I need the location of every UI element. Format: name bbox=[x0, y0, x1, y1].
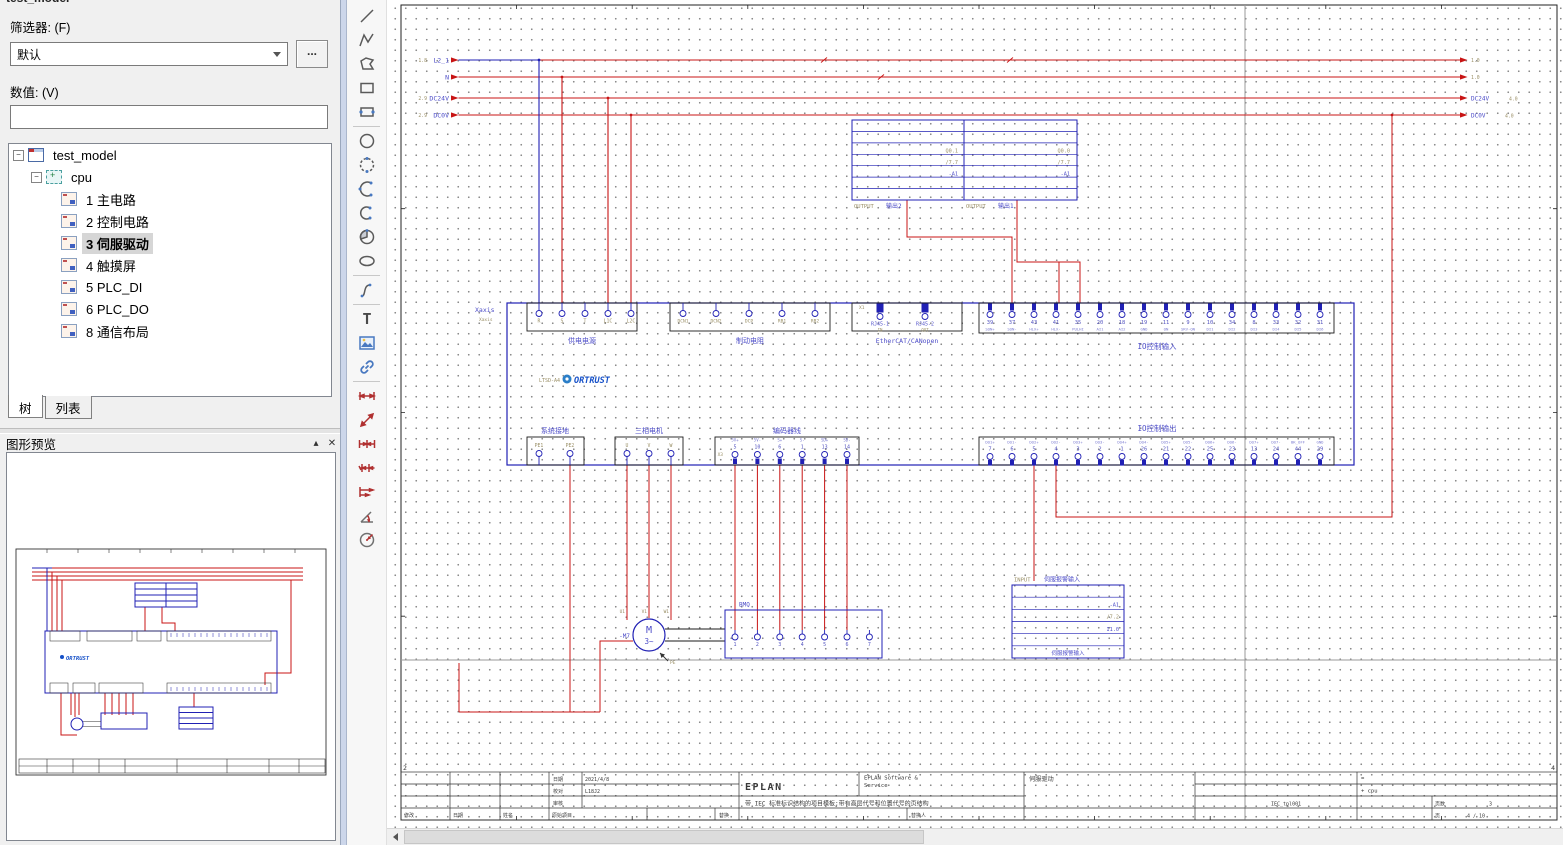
close-panel-icon[interactable]: ✕ bbox=[324, 438, 340, 449]
tool-circle-icon[interactable] bbox=[355, 130, 379, 152]
tb-structure: + cpu bbox=[1361, 789, 1378, 795]
ethercat-group-box bbox=[852, 303, 962, 331]
svg-text:DO6+: DO6+ bbox=[1205, 440, 1215, 445]
collapse-icon[interactable]: − bbox=[31, 172, 42, 183]
svg-text:SRV-ON: SRV-ON bbox=[1181, 327, 1196, 332]
svg-text:SON+: SON+ bbox=[985, 327, 995, 332]
svg-text:T: T bbox=[584, 319, 587, 325]
svg-text:11: 11 bbox=[1163, 320, 1170, 326]
tool-sector-icon[interactable] bbox=[355, 226, 379, 248]
svg-text:DO1+: DO1+ bbox=[985, 440, 995, 445]
svg-text:GND: GND bbox=[1140, 327, 1148, 332]
page-icon bbox=[61, 236, 77, 250]
svg-text:L1C: L1C bbox=[604, 319, 613, 325]
svg-text:S+: S+ bbox=[777, 438, 782, 443]
motor-symbol[interactable]: M 3~ -M7 U1 V1 W1 PE bbox=[619, 609, 725, 666]
toolbar-separator bbox=[353, 275, 380, 276]
group-label: IO控制输出 bbox=[1137, 423, 1176, 433]
tab-tree[interactable]: 树 bbox=[8, 395, 43, 418]
tb-label: 姓名 bbox=[503, 812, 513, 819]
terminal-strip-motor: UVW bbox=[624, 443, 674, 465]
svg-text:GND: GND bbox=[1316, 440, 1324, 445]
plc-name: 输出2 bbox=[886, 202, 902, 210]
tb-label: 替换 bbox=[719, 812, 729, 819]
tb-check: L18J2 bbox=[585, 789, 600, 795]
svg-text:IN: IN bbox=[878, 328, 883, 333]
svg-text:2: 2 bbox=[1098, 447, 1101, 453]
project-icon bbox=[28, 148, 44, 162]
plc-input-box[interactable]: INPUT 伺服报警输入 -A1 /7.2 I1.0 伺服报警输入 bbox=[1012, 576, 1124, 659]
tree-item-page[interactable]: 1 主电路 bbox=[9, 188, 331, 210]
tool-line-icon[interactable] bbox=[355, 5, 379, 27]
panel-top-title: test_model bbox=[6, 0, 69, 5]
plc-ref: /7.7 bbox=[946, 160, 959, 166]
svg-text:29: 29 bbox=[1317, 447, 1324, 453]
tb-label: 页数 bbox=[1435, 801, 1445, 808]
bus-label: DC24V bbox=[1471, 96, 1489, 103]
tool-spline-icon[interactable] bbox=[355, 279, 379, 301]
svg-text:DO4+: DO4+ bbox=[1117, 440, 1127, 445]
motor-pe: PE bbox=[670, 660, 676, 666]
svg-text:RB2: RB2 bbox=[811, 319, 820, 325]
bus-ref: 2.9 bbox=[418, 113, 427, 119]
svg-text:DO7-: DO7- bbox=[1271, 440, 1280, 445]
tool-dim-chain-icon[interactable] bbox=[355, 433, 379, 455]
terminal-strip-power: RSTL1CL2C bbox=[536, 303, 635, 325]
device-model: LTSD-A4 bbox=[539, 378, 560, 384]
motor-tag: -M7 bbox=[619, 633, 630, 640]
svg-text:S-: S- bbox=[800, 438, 805, 443]
svg-text:PULHI: PULHI bbox=[1072, 327, 1084, 332]
svg-text:3: 3 bbox=[1076, 447, 1079, 453]
svg-text:39: 39 bbox=[987, 320, 994, 326]
motor-letter: M bbox=[646, 625, 652, 636]
group-label: 编码器线 bbox=[773, 426, 801, 435]
tb-label: 替换人 bbox=[911, 812, 926, 819]
filter-value: 默认 bbox=[17, 46, 41, 63]
bus-label: DC24V bbox=[429, 95, 449, 103]
svg-text:35: 35 bbox=[1075, 320, 1082, 326]
svg-text:24: 24 bbox=[1273, 447, 1280, 453]
preview-title: 图形预览 bbox=[0, 434, 308, 453]
svg-text:5: 5 bbox=[1032, 447, 1035, 453]
navigator-panel: test_model 筛选器: (F) 默认 ... 数值: (V) − tes… bbox=[0, 0, 341, 845]
tool-arc-2point-icon[interactable] bbox=[355, 202, 379, 224]
svg-text:25: 25 bbox=[1207, 447, 1214, 453]
svg-text:4: 4 bbox=[801, 642, 804, 648]
terminal-strip-bmq: 1234567 bbox=[732, 630, 872, 648]
svg-text:PE1: PE1 bbox=[535, 443, 544, 449]
svg-text:V: V bbox=[648, 443, 651, 449]
filter-label: 筛选器: (F) bbox=[10, 17, 340, 36]
tb-pages: 3 bbox=[1489, 802, 1492, 808]
svg-text:13: 13 bbox=[1251, 447, 1258, 453]
frame-column-marker: 2 bbox=[403, 764, 407, 772]
svg-text:32: 32 bbox=[1295, 320, 1302, 326]
svg-text:PE2: PE2 bbox=[566, 443, 575, 449]
group-label: EtherCAT/CANopen bbox=[876, 337, 939, 345]
bus-ref: 1.0 bbox=[1471, 58, 1480, 64]
svg-text:37: 37 bbox=[1009, 320, 1016, 326]
svg-text:6: 6 bbox=[1010, 447, 1013, 453]
schematic-canvas[interactable]: 2 4 L2_1 N DC24V DC0V 1.8 2.9 2.9 1.0 1.… bbox=[387, 0, 1563, 845]
svg-text:SON-: SON- bbox=[1007, 327, 1016, 332]
svg-text:23: 23 bbox=[1229, 447, 1236, 453]
tb-eq: = bbox=[1361, 776, 1365, 782]
left-arrow-icon bbox=[393, 833, 398, 841]
tree-item-root[interactable]: − test_model bbox=[9, 144, 331, 166]
svg-text:44: 44 bbox=[1295, 447, 1302, 453]
tree-item-page[interactable]: 5 PLC_DI bbox=[9, 276, 331, 298]
page-tree[interactable]: − test_model − cpu 1 主电路 2 控制电路 3 伺服驱动 4… bbox=[8, 143, 332, 397]
bus-label: DC0V bbox=[1471, 113, 1486, 120]
bus-ref: 1.0 bbox=[1471, 75, 1480, 81]
schematic-drawing[interactable]: 2 4 L2_1 N DC24V DC0V 1.8 2.9 2.9 1.0 1.… bbox=[387, 0, 1563, 828]
plc-ref: /7.2 bbox=[1107, 615, 1120, 621]
structure-icon bbox=[46, 170, 62, 184]
svg-text:34: 34 bbox=[1229, 320, 1236, 326]
tb-label: 日期 bbox=[553, 777, 563, 783]
power-group-box bbox=[527, 303, 637, 331]
tb-label: 页 bbox=[1435, 814, 1440, 820]
svg-text:7: 7 bbox=[988, 447, 991, 453]
plc-output-boxes[interactable]: Q0.1 /7.7 -A1 Q0.0 /7.7 -A1 OUTPUT 输出2 O… bbox=[852, 120, 1077, 210]
tb-page-title: 伺服驱动 bbox=[1029, 775, 1054, 783]
tb-date: 2021/4/8 bbox=[585, 777, 609, 783]
panel-top-fragment: test_model bbox=[0, 0, 340, 7]
tree-cpu-label[interactable]: cpu bbox=[67, 169, 96, 186]
tree-item-page[interactable]: 6 PLC_DO bbox=[9, 298, 331, 320]
svg-text:43: 43 bbox=[1031, 320, 1038, 326]
brand-name: ORTRUST bbox=[574, 376, 611, 386]
encoder-box[interactable]: BMQ 1234567 bbox=[725, 602, 882, 659]
tree-item-page-selected[interactable]: 3 伺服驱动 bbox=[9, 232, 331, 254]
svg-text:RB1: RB1 bbox=[778, 319, 787, 325]
svg-text:4: 4 bbox=[1054, 447, 1057, 453]
bus-label: N bbox=[445, 74, 449, 82]
collapse-panel-icon[interactable]: ▴ bbox=[308, 438, 324, 449]
bus-lines: L2_1 N DC24V DC0V 1.8 2.9 2.9 1.0 1.0 DC… bbox=[418, 57, 1517, 304]
svg-text:T: T bbox=[362, 310, 371, 328]
tb-brand: EPLAN bbox=[745, 782, 783, 793]
tb-company: Service bbox=[864, 783, 888, 789]
svg-text:ORTRUST: ORTRUST bbox=[66, 656, 90, 662]
plc-tag: -A1 bbox=[1110, 603, 1119, 609]
brand-logo-hole bbox=[565, 377, 568, 380]
bus-ref: 4.0 bbox=[1509, 97, 1518, 103]
svg-text:5V-: 5V- bbox=[754, 438, 761, 443]
motor-phase: 3~ bbox=[644, 637, 654, 646]
svg-text:HLX+: HLX+ bbox=[1029, 327, 1039, 332]
svg-text:DO3-: DO3- bbox=[1095, 440, 1104, 445]
tb-form: IEC_tpl001 bbox=[1271, 802, 1301, 808]
svg-text:1: 1 bbox=[1120, 447, 1123, 453]
tree-root-label[interactable]: test_model bbox=[49, 147, 121, 164]
svg-text:BK_OFF: BK_OFF bbox=[1291, 440, 1306, 445]
scroll-left-button[interactable] bbox=[387, 829, 403, 845]
chevron-down-icon bbox=[273, 52, 281, 57]
tool-polyline-icon[interactable] bbox=[355, 29, 379, 51]
bus-arrows bbox=[451, 57, 1468, 117]
svg-text:1: 1 bbox=[801, 445, 804, 451]
page-icon bbox=[61, 214, 77, 228]
tab-list[interactable]: 列表 bbox=[45, 396, 92, 419]
svg-text:W: W bbox=[670, 443, 673, 449]
svg-text:L2C: L2C bbox=[627, 319, 636, 325]
tool-circle-2point-icon[interactable] bbox=[355, 154, 379, 176]
svg-text:DI5: DI5 bbox=[1294, 327, 1302, 332]
svg-text:14: 14 bbox=[844, 445, 850, 451]
plc-type: INPUT bbox=[1014, 578, 1031, 584]
tool-dim-radius-icon[interactable] bbox=[355, 529, 379, 551]
encoder-label: BMQ bbox=[739, 602, 750, 609]
value-label: 数值: (V) bbox=[10, 82, 340, 101]
plc-function: 伺服报警输入 bbox=[1051, 649, 1085, 657]
tool-image-icon[interactable] bbox=[355, 332, 379, 354]
svg-text:5: 5 bbox=[733, 445, 736, 451]
svg-text:18: 18 bbox=[1119, 320, 1126, 326]
tool-arc-3point-icon[interactable] bbox=[355, 178, 379, 200]
bus-label: DC0V bbox=[433, 112, 449, 120]
tool-dim-linear-icon[interactable] bbox=[355, 385, 379, 407]
filter-dropdown[interactable]: 默认 bbox=[10, 42, 288, 66]
svg-text:1: 1 bbox=[733, 642, 736, 648]
tree-page-label[interactable]: 6 PLC_DO bbox=[82, 301, 153, 318]
tb-description: 带 IEC 标准标识结构的项目模板:带有高层代号和位置代号的页结构 bbox=[745, 800, 929, 808]
tool-dim-baseline-icon[interactable] bbox=[355, 481, 379, 503]
terminal-strip-brake: DCN1DCN2DCPRB1RB2 bbox=[677, 303, 819, 325]
svg-text:S: S bbox=[561, 319, 564, 325]
tree-page-label[interactable]: 2 控制电路 bbox=[82, 211, 153, 232]
tool-dim-aligned-icon[interactable] bbox=[355, 409, 379, 431]
tool-hyperlink-icon[interactable] bbox=[355, 356, 379, 378]
device-tag: Xaxis bbox=[475, 306, 495, 314]
terminal-strip-encoder: 5V+55V-10S+6S-1SD+13SD-14 bbox=[731, 438, 850, 465]
tool-ellipse-icon[interactable] bbox=[355, 250, 379, 272]
tree-item-cpu[interactable]: − cpu bbox=[9, 166, 331, 188]
svg-text:DO3+: DO3+ bbox=[1073, 440, 1083, 445]
svg-text:SD+: SD+ bbox=[821, 438, 829, 443]
connector-label: X3 bbox=[718, 452, 724, 458]
svg-text:22: 22 bbox=[1185, 447, 1192, 453]
svg-text:8: 8 bbox=[1252, 320, 1255, 326]
terminal-strip-ground: PE1PE2 bbox=[535, 443, 575, 465]
tb-label: 修改 bbox=[404, 812, 414, 819]
svg-text:DO5-: DO5- bbox=[1183, 440, 1192, 445]
value-input[interactable] bbox=[10, 105, 328, 129]
plc-tag: -A1 bbox=[1061, 171, 1070, 177]
servo-drive-block[interactable]: 供电电源 制动电阻 EtherCAT/CANopen IO控制输入 系统接地 三… bbox=[475, 303, 1354, 466]
svg-text:U: U bbox=[626, 443, 629, 449]
motor-pin: W1 bbox=[664, 609, 670, 615]
svg-text:DO4-: DO4- bbox=[1139, 440, 1148, 445]
svg-text:DO6-: DO6- bbox=[1227, 440, 1236, 445]
svg-text:6: 6 bbox=[845, 642, 848, 648]
brake-group-box bbox=[670, 303, 830, 331]
motor-pin: V1 bbox=[642, 609, 648, 615]
frame-column-marker: 4 bbox=[1551, 764, 1555, 772]
tb-page: 4 / 10 bbox=[1467, 814, 1485, 820]
plc-name: 伺服报警输入 bbox=[1044, 576, 1080, 584]
svg-text:31: 31 bbox=[1317, 320, 1324, 326]
graphics-toolbar: T bbox=[347, 0, 387, 845]
toolbar-separator bbox=[353, 381, 380, 382]
svg-text:AI2: AI2 bbox=[1118, 327, 1126, 332]
group-label: 三相电机 bbox=[635, 426, 663, 435]
svg-text:DO2-: DO2- bbox=[1051, 440, 1060, 445]
ground-group-box bbox=[527, 437, 584, 465]
collapse-icon[interactable]: − bbox=[13, 150, 24, 161]
svg-text:DI3: DI3 bbox=[1250, 327, 1258, 332]
svg-text:33: 33 bbox=[1273, 320, 1280, 326]
tree-page-label[interactable]: 3 伺服驱动 bbox=[82, 233, 153, 254]
connector-label: X1 bbox=[859, 305, 865, 311]
svg-text:DI1: DI1 bbox=[1206, 327, 1214, 332]
horizontal-scrollbar[interactable] bbox=[387, 828, 1563, 845]
svg-text:5V+: 5V+ bbox=[731, 438, 739, 443]
svg-text:DO7+: DO7+ bbox=[1249, 440, 1259, 445]
terminal-strip-ethercat: RJ45-1INRJ45-2OUT bbox=[871, 304, 934, 333]
tb-label: 日期 bbox=[453, 813, 463, 819]
svg-text:DCN2: DCN2 bbox=[710, 319, 721, 325]
tree-item-page[interactable]: 8 通信布局 bbox=[9, 320, 331, 342]
plc-address: I1.0 bbox=[1107, 627, 1120, 633]
svg-text:ON: ON bbox=[1164, 327, 1169, 332]
svg-text:DI6: DI6 bbox=[1316, 327, 1324, 332]
group-label: 制动电阻 bbox=[736, 336, 764, 345]
svg-text:9: 9 bbox=[1186, 320, 1189, 326]
svg-text:6: 6 bbox=[778, 445, 781, 451]
svg-text:DO5+: DO5+ bbox=[1161, 440, 1171, 445]
plc-address: Q0.0 bbox=[1058, 149, 1071, 155]
tb-label: 原始项目 bbox=[552, 812, 572, 819]
tree-item-page[interactable]: 4 触摸屏 bbox=[9, 254, 331, 276]
group-label: IO控制输入 bbox=[1137, 341, 1177, 351]
svg-text:41: 41 bbox=[1053, 320, 1060, 326]
preview-schematic: ORTRUST bbox=[7, 453, 333, 838]
page-icon bbox=[61, 258, 77, 272]
svg-text:DO1-: DO1- bbox=[1007, 440, 1016, 445]
filter-more-button[interactable]: ... bbox=[296, 40, 328, 68]
section-dividers bbox=[401, 5, 1557, 820]
svg-text:20: 20 bbox=[1097, 320, 1104, 326]
tb-company: EPLAN Software & bbox=[864, 776, 919, 782]
svg-text:19: 19 bbox=[1141, 320, 1148, 326]
bus-ref: 4.0 bbox=[1505, 114, 1514, 120]
tool-rectangle-icon[interactable] bbox=[355, 77, 379, 99]
group-label: 供电电源 bbox=[568, 336, 596, 345]
toolbar-separator bbox=[353, 126, 380, 127]
tb-label: 校对 bbox=[553, 788, 563, 795]
plc-ref: /7.7 bbox=[1058, 160, 1071, 166]
svg-text:10: 10 bbox=[1207, 320, 1214, 326]
tree-page-label[interactable]: 1 主电路 bbox=[82, 189, 140, 210]
terminal-strip-io-in: 39SON+37SON-43HLX+41HLX-35PULHI20AI118AI… bbox=[985, 304, 1324, 332]
tool-polygon-icon[interactable] bbox=[355, 53, 379, 75]
graphic-preview: ORTRUST bbox=[6, 452, 336, 841]
bus-ref: 2.9 bbox=[418, 96, 427, 102]
page-icon bbox=[61, 192, 77, 206]
svg-text:7: 7 bbox=[868, 642, 871, 648]
svg-text:HLX-: HLX- bbox=[1051, 327, 1060, 332]
svg-text:26: 26 bbox=[1141, 447, 1148, 453]
page-icon bbox=[61, 324, 77, 338]
bus-ref: 1.8 bbox=[418, 58, 427, 64]
svg-text:SD-: SD- bbox=[843, 438, 850, 443]
svg-text:10: 10 bbox=[754, 445, 760, 451]
svg-text:R: R bbox=[538, 319, 541, 325]
tree-page-label[interactable]: 4 触摸屏 bbox=[82, 255, 140, 276]
svg-text:DI2: DI2 bbox=[1228, 327, 1236, 332]
tool-text-icon[interactable]: T bbox=[355, 308, 379, 330]
svg-text:AI1: AI1 bbox=[1096, 327, 1104, 332]
tree-page-label[interactable]: 8 通信布局 bbox=[82, 321, 153, 342]
svg-text:DO2+: DO2+ bbox=[1029, 440, 1039, 445]
plc-address: Q0.1 bbox=[946, 149, 959, 155]
plc-type: OUTPUT bbox=[966, 204, 987, 210]
svg-text:3: 3 bbox=[778, 642, 781, 648]
tool-dim-chain-2-icon[interactable] bbox=[355, 457, 379, 479]
svg-text:5: 5 bbox=[823, 642, 826, 648]
tool-rectangle-2point-icon[interactable] bbox=[355, 101, 379, 123]
tree-page-label[interactable]: 5 PLC_DI bbox=[82, 279, 146, 296]
motor-pin: U1 bbox=[620, 609, 626, 615]
bus-label: L2_1 bbox=[433, 57, 449, 65]
page-icon bbox=[61, 280, 77, 294]
terminal-strip-io-out: DO1+7DO1-6DO2+5DO2-4DO3+3DO3-2DO4+1DO4-2… bbox=[985, 440, 1324, 466]
svg-text:DCN1: DCN1 bbox=[677, 319, 688, 325]
toolbar-separator bbox=[353, 304, 380, 305]
tree-item-page[interactable]: 2 控制电路 bbox=[9, 210, 331, 232]
plc-name: 输出1 bbox=[998, 202, 1014, 210]
drawing-frame: 2 4 bbox=[401, 5, 1557, 820]
svg-text:DI4: DI4 bbox=[1272, 327, 1280, 332]
device-tag-sub: Xaxis bbox=[479, 317, 493, 323]
plc-type: OUTPUT bbox=[854, 204, 875, 210]
title-block: 日期 2021/4/8 校对 L18J2 审核 修改 日期 姓名 原始项目 替换… bbox=[401, 772, 1557, 820]
scrollbar-thumb[interactable] bbox=[404, 830, 924, 844]
tb-label: 审核 bbox=[553, 800, 563, 807]
plc-tag: -A1 bbox=[949, 171, 958, 177]
wires bbox=[459, 115, 1392, 712]
svg-text:DCP: DCP bbox=[745, 319, 754, 325]
page-icon bbox=[61, 302, 77, 316]
tool-dim-angle-icon[interactable] bbox=[355, 505, 379, 527]
svg-text:2: 2 bbox=[756, 642, 759, 648]
svg-text:21: 21 bbox=[1163, 447, 1170, 453]
svg-text:OUT: OUT bbox=[921, 328, 929, 333]
group-label: 系统接地 bbox=[541, 426, 569, 435]
svg-text:13: 13 bbox=[822, 445, 828, 451]
